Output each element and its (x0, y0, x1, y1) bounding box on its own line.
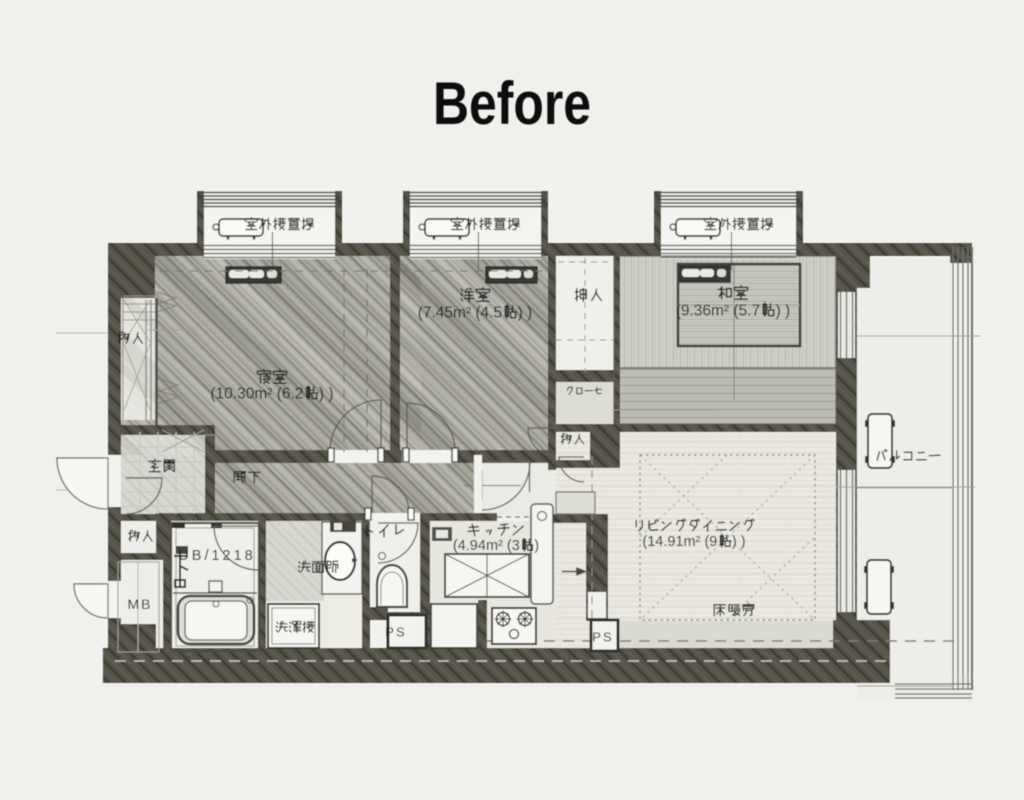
svg-text:) ): ) ) (776, 303, 791, 320)
svg-text:PS: PS (592, 630, 613, 645)
svg-text:(4.94m² (3: (4.94m² (3 (453, 538, 520, 554)
svg-text:): ) (534, 538, 539, 554)
svg-text:UB/1218: UB/1218 (178, 548, 255, 564)
svg-text:MB: MB (128, 596, 153, 612)
svg-text:PS: PS (385, 625, 406, 640)
svg-text:) ): ) ) (732, 534, 746, 550)
svg-text:(14.91m² (9: (14.91m² (9 (642, 534, 717, 550)
svg-text:) ): ) ) (319, 386, 334, 403)
svg-text:(7.45m² (4.5: (7.45m² (4.5 (418, 305, 502, 322)
svg-text:(9.36m² (5.7: (9.36m² (5.7 (676, 303, 760, 320)
svg-text:(10.30m² (6.2: (10.30m² (6.2 (210, 386, 303, 403)
svg-text:Before: Before (433, 70, 591, 137)
svg-text:) ): ) ) (518, 305, 533, 322)
